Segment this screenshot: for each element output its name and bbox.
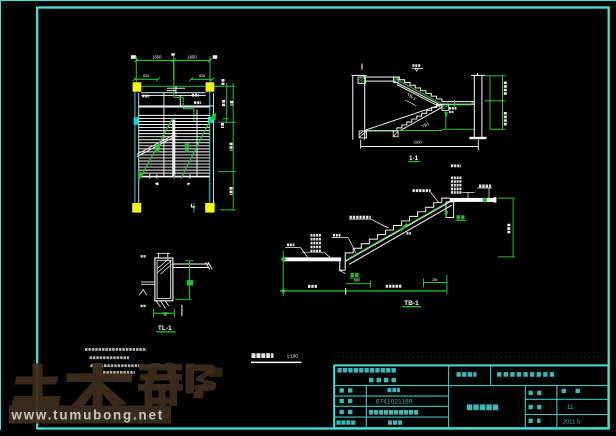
svg-text:TB-1: TB-1: [404, 300, 419, 307]
svg-text:1:100: 1:100: [287, 353, 299, 358]
svg-text:1650: 1650: [152, 55, 162, 60]
svg-text:0741021169: 0741021169: [376, 398, 413, 405]
svg-text:825: 825: [143, 74, 149, 78]
svg-text:280: 280: [432, 278, 438, 282]
svg-text:TL-1: TL-1: [158, 325, 172, 332]
svg-text:1-1: 1-1: [409, 155, 419, 162]
svg-text:825: 825: [199, 74, 205, 78]
svg-text:11: 11: [567, 404, 574, 411]
svg-text:1650: 1650: [187, 55, 197, 60]
svg-text:2011.5: 2011.5: [563, 420, 580, 426]
svg-text:www.tumubong.net: www.tumubong.net: [11, 408, 165, 423]
svg-text:800: 800: [354, 278, 360, 282]
svg-text:3300: 3300: [414, 140, 422, 144]
